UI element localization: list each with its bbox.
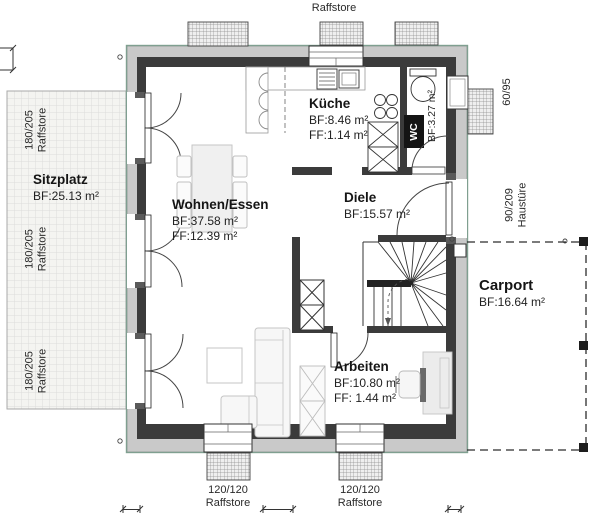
room-label-kueche: Küche BF:8.46 m² FF:1.14 m² — [309, 96, 368, 142]
room-area: BF:37.58 m² — [172, 214, 269, 228]
room-label-diele: Diele BF:15.57 m² — [344, 190, 410, 221]
window-label-top: 120/120 Raffstore — [294, 0, 374, 15]
window-label-left-3: 180/205 Raffstore — [24, 349, 49, 393]
toilet-cistern — [410, 69, 436, 76]
room-area: BF:10.80 m² — [334, 376, 400, 390]
floor-plan: Sitzplatz BF:25.13 m² 180/205 Raffstore … — [0, 0, 600, 513]
window-label-bottom-2: 120/120 Raffstore — [320, 484, 400, 510]
room-area: BF:15.57 m² — [344, 207, 410, 221]
carport-outline — [454, 237, 588, 452]
raffstore-box — [339, 453, 382, 480]
room-name: Diele — [344, 190, 410, 206]
diele-cabinet — [300, 280, 324, 330]
raffstore-box — [395, 22, 438, 45]
room-name: Sitzplatz — [33, 172, 99, 188]
monitor — [420, 368, 426, 402]
carport-post — [579, 341, 588, 350]
carport-post — [579, 443, 588, 452]
room-area: BF:16.64 m² — [479, 295, 545, 309]
room-area: FF:12.39 m² — [172, 229, 269, 243]
window-label-left-1: 180/205 Raffstore — [24, 108, 49, 152]
sofa — [255, 328, 290, 437]
room-label-wohnen: Wohnen/Essen BF:37.58 m² FF:12.39 m² — [172, 197, 269, 243]
arbeiten-cabinet — [300, 366, 325, 436]
room-area: BF:8.46 m² — [309, 113, 368, 127]
room-label-wc: WC — [408, 123, 420, 141]
downpipe — [454, 244, 466, 257]
window-label-60-95: 60/95 — [501, 78, 514, 106]
room-name: Küche — [309, 96, 368, 112]
chair — [233, 156, 247, 177]
office-chair — [399, 371, 420, 398]
carport-post — [579, 237, 588, 246]
kitchen-tall-cabinet — [368, 122, 398, 172]
raffstore-box — [207, 453, 250, 480]
entry-door-label: 90/209 Haustüre — [504, 183, 529, 228]
room-label-arbeiten: Arbeiten BF:10.80 m² FF: 1.44 m² — [334, 359, 400, 405]
wc-door-leaf — [412, 167, 445, 174]
floor-plan-drawing — [0, 0, 600, 513]
raffstore-box — [320, 22, 363, 45]
window-label-left-2: 180/205 Raffstore — [24, 227, 49, 271]
room-area: BF:25.13 m² — [33, 189, 99, 203]
raffstore-box — [188, 22, 248, 46]
room-area-wc: BF:3.27 m² — [426, 90, 439, 142]
room-area: FF:1.14 m² — [309, 128, 368, 142]
room-name: Wohnen/Essen — [172, 197, 269, 213]
raffstore-box — [468, 89, 493, 134]
room-name: Arbeiten — [334, 359, 400, 375]
room-name: Carport — [479, 277, 545, 294]
room-area: FF: 1.44 m² — [334, 391, 400, 405]
chaise — [221, 396, 257, 428]
desk — [423, 352, 452, 414]
chair — [177, 156, 191, 177]
window-label-bottom-1: 120/120 Raffstore — [188, 484, 268, 510]
room-label-sitzplatz: Sitzplatz BF:25.13 m² — [33, 172, 99, 203]
door-leaf — [446, 182, 452, 235]
room-label-carport: Carport BF:16.64 m² — [479, 277, 545, 309]
coffee-table — [207, 348, 242, 383]
oven — [317, 69, 337, 89]
